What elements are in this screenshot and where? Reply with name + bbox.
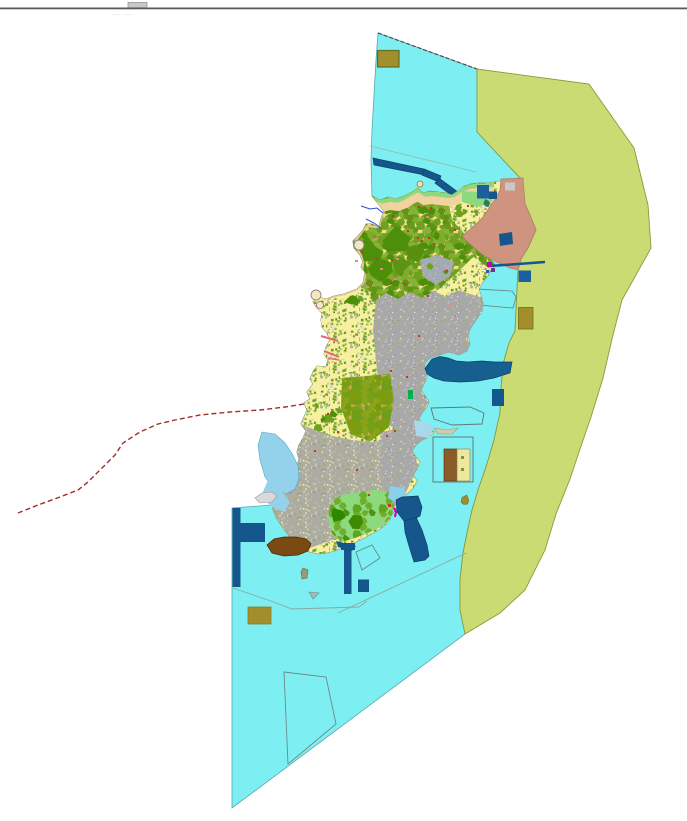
svg-text:— · —: — · — [112, 11, 132, 18]
